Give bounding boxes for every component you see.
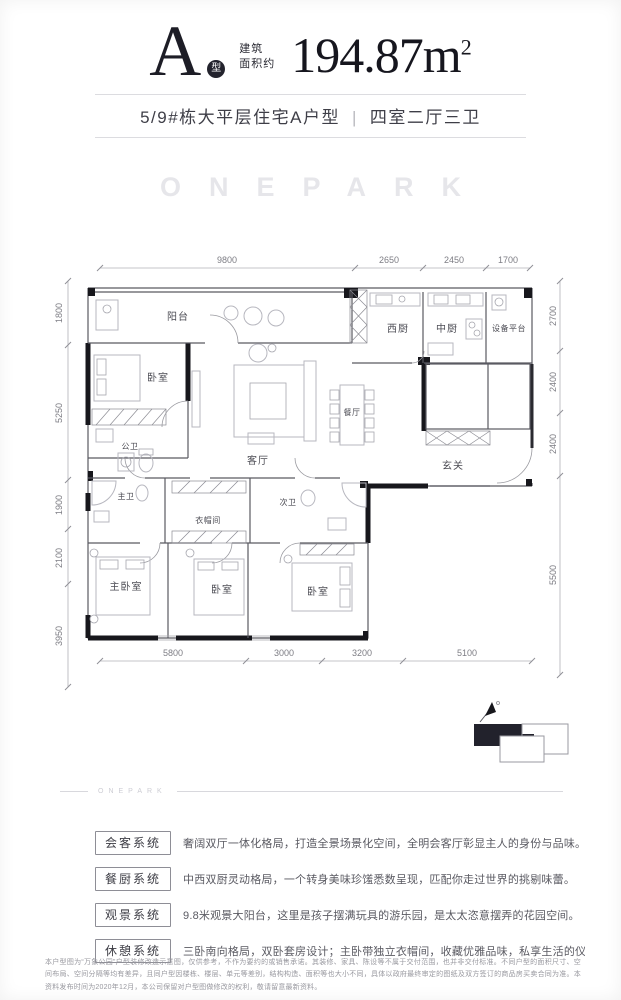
disclaimer-text: 本户型图为“万象公园”户型装修改造示意图，仅供参考，不作为要约的或销售承诺。其装… [45,957,581,994]
dim-label: 5800 [163,648,183,658]
feature-row: 会客系统 奢阔双厅一体化格局，打造全景场景化空间，全明会客厅彰显主人的身份与品味… [95,831,585,855]
divider-line-right [177,791,563,792]
area-unit-sup: 2 [461,35,472,60]
area-prefix-line2: 面积约 [239,57,275,72]
dim-label: 2650 [379,255,399,265]
dim-label: 3000 [274,648,294,658]
feature-label: 餐厨系统 [95,867,171,891]
feature-text: 中西双厨灵动格局，一个转身美味珍馐悉数呈现，匹配你走过世界的挑剔味蕾。 [183,871,575,887]
feature-label: 观景系统 [95,903,171,927]
room-label-west-kitchen: 西厨 [387,323,409,335]
north-arrow-icon [480,702,500,723]
area-prefix: 建筑 面积约 [239,42,275,84]
unit-type-letter: A 型 [149,20,223,83]
dim-label: 3200 [352,648,372,658]
structural-walls [88,288,532,638]
dim-label: 2400 [548,434,558,454]
feature-row: 餐厨系统 中西双厨灵动格局，一个转身美味珍馐悉数呈现，匹配你走过世界的挑剔味蕾。 [95,867,585,891]
dim-label: 5500 [548,565,558,585]
building-locator-map [468,698,578,768]
dim-label: 2700 [548,306,558,326]
feature-list: 会客系统 奢阔双厅一体化格局，打造全景场景化空间，全明会客厅彰显主人的身份与品味… [95,831,585,975]
area-unit: m [423,27,461,83]
room-label-equipment-platform: 设备平台 [492,323,526,333]
dim-bottom: 5800 3000 3200 5100 [97,648,535,664]
brand-watermark: ONEPARK [0,172,621,203]
area-prefix-line1: 建筑 [239,42,275,57]
room-label-foyer: 玄关 [442,459,464,472]
outer-walls [88,288,532,638]
subtitle-bar: 5/9#栋大平层住宅A户型|四室二厅三卫 [95,94,526,138]
room-label-chinese-kitchen: 中厨 [436,322,458,335]
dim-label: 5100 [457,648,477,658]
flyer-page: A 型 建筑 面积约 194.87m2 5/9#栋大平层住宅A户型|四室二厅三卫… [0,0,621,1000]
hatch-details [92,290,490,555]
dim-label: 1700 [498,255,518,265]
feature-text: 9.8米观景大阳台，这里是孩子摆满玩具的游乐园，是太太恣意摆弄的花园空间。 [183,907,580,923]
dim-label: 2450 [444,255,464,265]
feature-text: 奢阔双厅一体化格局，打造全景场景化空间，全明会客厅彰显主人的身份与品味。 [183,835,585,851]
dim-top: 9800 2650 2450 1700 [97,255,533,271]
dim-label: 5250 [54,403,64,423]
divider-line-left [60,791,88,792]
divider-watermark: ONEPARK [98,788,167,795]
feature-row: 观景系统 9.8米观景大阳台，这里是孩子摆满玩具的游乐园，是太太恣意摆弄的花园空… [95,903,585,927]
room-label-bedroom-mid: 卧室 [211,583,233,596]
locator-front-unit [500,736,544,762]
subtitle-left: 5/9#栋大平层住宅A户型 [140,108,340,127]
room-label-living-room: 客厅 [247,454,269,467]
subtitle-right: 四室二厅三卫 [370,108,481,127]
room-label-dining-room: 餐厅 [344,408,361,417]
room-label-bedroom-top: 卧室 [147,371,169,384]
area-number: 194.87 [291,27,423,83]
subtitle-separator: | [340,108,370,127]
room-label-second-bath: 次卫 [280,497,297,507]
dim-label: 1900 [54,495,64,515]
header: A 型 建筑 面积约 194.87m2 [0,20,621,83]
room-label-cloakroom: 衣帽间 [195,515,221,525]
dim-label: 9800 [217,255,237,265]
type-letter-text: A [149,11,201,91]
dim-right: 2700 2400 2400 5500 [548,278,563,678]
dim-left: 1800 5250 1900 2100 3950 [54,278,71,690]
type-badge: 型 [207,60,225,78]
section-divider: ONEPARK [60,788,563,795]
dim-label: 2400 [548,372,558,392]
dim-label: 2100 [54,548,64,568]
area-value: 194.87m2 [291,30,471,83]
dim-label: 3950 [54,626,64,646]
room-label-master-bedroom: 主卧室 [110,580,143,593]
room-label-master-bath: 主卫 [118,491,135,501]
feature-label: 会客系统 [95,831,171,855]
dim-label: 1800 [54,303,64,323]
room-label-bedroom-right: 卧室 [307,585,329,598]
room-label-public-bath: 公卫 [122,442,139,451]
room-label-balcony: 阳台 [167,310,189,323]
floorplan-drawing: 9800 2650 2450 1700 1800 5250 1900 2100 … [0,243,621,698]
